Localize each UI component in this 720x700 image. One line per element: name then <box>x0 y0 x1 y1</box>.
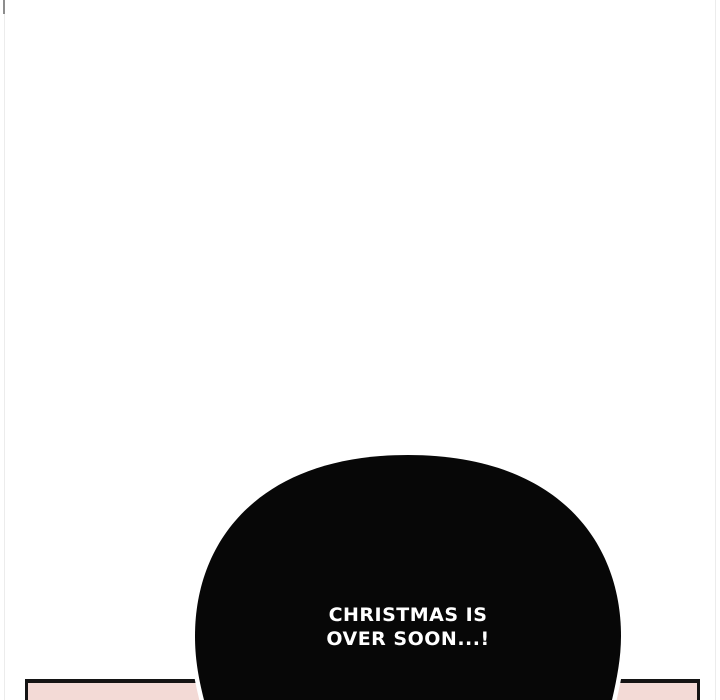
right-margin-line <box>715 0 716 700</box>
speech-bubble-shape <box>195 455 621 700</box>
page: { "page": { "background_color": "#ffffff… <box>0 0 720 700</box>
speech-line-1: CHRISTMAS IS <box>185 603 631 627</box>
speech-line-2: OVER SOON...! <box>185 627 631 651</box>
left-margin-line <box>4 0 5 700</box>
speech-bubble <box>185 445 631 700</box>
left-margin-dash <box>3 0 5 14</box>
speech-bubble-text: CHRISTMAS IS OVER SOON...! <box>185 603 631 651</box>
